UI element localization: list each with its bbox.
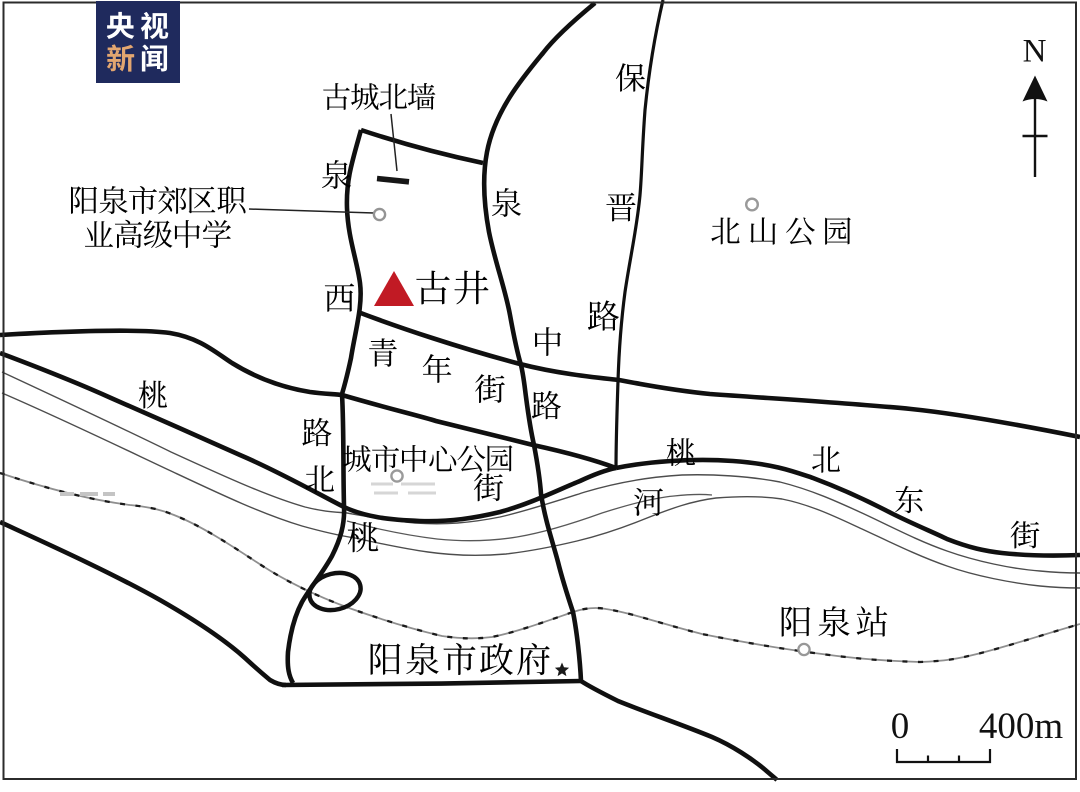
svg-text:400m: 400m bbox=[979, 706, 1064, 747]
svg-text:0: 0 bbox=[891, 706, 910, 747]
svg-text:N: N bbox=[1023, 34, 1047, 70]
